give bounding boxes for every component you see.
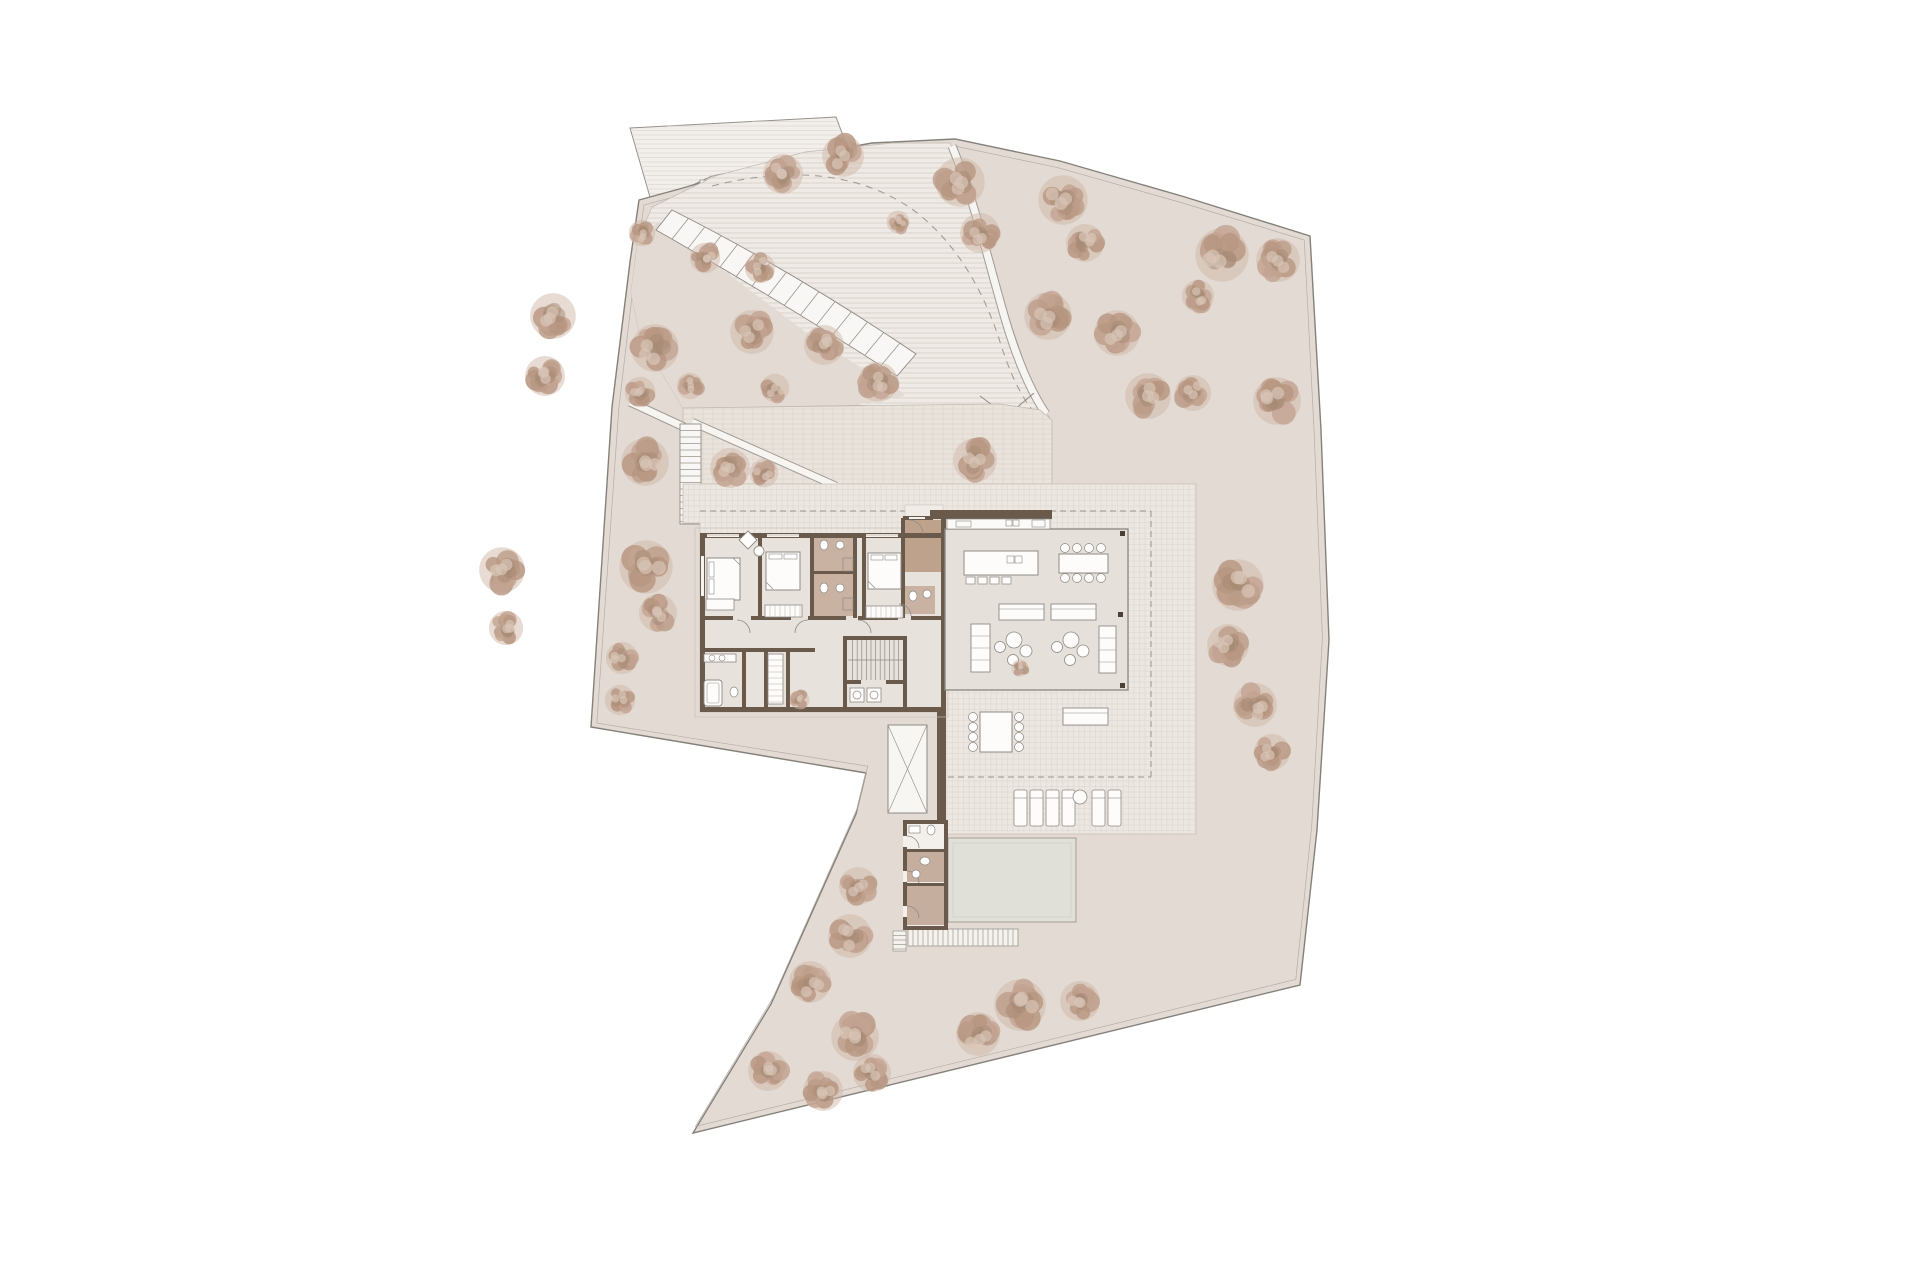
pool-wing-walls bbox=[907, 883, 944, 886]
pavilion-columns bbox=[1120, 683, 1125, 688]
wing-walls bbox=[814, 571, 855, 574]
tree-foliage-light bbox=[1183, 385, 1193, 395]
dining-table bbox=[1059, 554, 1108, 573]
tree-foliage-light bbox=[617, 654, 626, 663]
tree-foliage-light bbox=[652, 561, 666, 575]
tree-foliage-light bbox=[1034, 308, 1047, 321]
tree-foliage-light bbox=[870, 1071, 880, 1081]
tree-foliage-light bbox=[835, 145, 846, 156]
wing-walls bbox=[742, 650, 746, 709]
wc-sw bbox=[730, 687, 738, 697]
desk bbox=[706, 599, 734, 610]
shelf-units bbox=[1099, 626, 1116, 673]
tree-foliage-light bbox=[1079, 232, 1089, 242]
pool-wing-walls bbox=[944, 820, 948, 930]
tree-foliage-light bbox=[762, 473, 770, 481]
sofas bbox=[1051, 604, 1096, 620]
bed-2-pillows bbox=[769, 554, 782, 559]
pool-wing-wc-top bbox=[927, 825, 935, 835]
tree-foliage-light bbox=[842, 925, 854, 937]
tree-foliage-light bbox=[505, 620, 514, 629]
bed-1-pillows bbox=[709, 579, 714, 594]
pool-wing-floors bbox=[907, 852, 944, 882]
dining-chairs bbox=[1085, 574, 1094, 583]
sofas bbox=[999, 604, 1044, 620]
outdoor-dining-chairs bbox=[1015, 713, 1024, 722]
floor-plan-canvas bbox=[0, 0, 1920, 1280]
wing-walls bbox=[886, 680, 907, 684]
pool-wing-wc bbox=[920, 857, 930, 865]
tree-foliage-light bbox=[610, 655, 619, 664]
tree-foliage-light bbox=[798, 695, 803, 700]
laundry-units bbox=[850, 688, 864, 702]
outdoor-dining-chairs bbox=[1015, 723, 1024, 732]
tree-foliage-light bbox=[637, 557, 651, 571]
island-stools bbox=[1002, 577, 1011, 584]
dining-chairs bbox=[1073, 574, 1082, 583]
island-stools bbox=[990, 577, 999, 584]
pool-wing-basin bbox=[912, 870, 920, 878]
bath-floors bbox=[814, 538, 853, 571]
tree-foliage-light bbox=[952, 182, 965, 195]
window-gaps bbox=[767, 534, 799, 537]
tree-foliage-light bbox=[1193, 381, 1203, 391]
tree-foliage-light bbox=[819, 339, 830, 350]
window-gaps bbox=[866, 534, 898, 537]
tree-foliage-light bbox=[720, 461, 731, 472]
wing-walls bbox=[808, 616, 846, 620]
outdoor-dining-chairs bbox=[969, 723, 978, 732]
sun-loungers bbox=[1108, 790, 1121, 826]
outdoor-dining-chairs bbox=[1015, 743, 1024, 752]
tree-foliage-light bbox=[544, 312, 556, 324]
tree-foliage-light bbox=[965, 1037, 977, 1049]
pool-wing-walls bbox=[907, 849, 944, 852]
island-stools bbox=[966, 577, 975, 584]
tree-foliage-light bbox=[1105, 333, 1117, 345]
wardrobes bbox=[765, 605, 802, 617]
tree-foliage-light bbox=[976, 233, 987, 244]
pool bbox=[948, 838, 1076, 922]
wing-walls bbox=[853, 533, 857, 618]
bed-3-pillows bbox=[885, 555, 897, 560]
wing-walls bbox=[901, 518, 905, 618]
wc-fixtures bbox=[820, 583, 828, 593]
tree-foliage-light bbox=[1144, 383, 1156, 395]
tree-foliage-light bbox=[538, 367, 549, 378]
coffee-tables bbox=[1077, 645, 1089, 657]
outdoor-sofa bbox=[1063, 708, 1108, 725]
wing-walls bbox=[843, 636, 847, 712]
dining-chairs bbox=[1097, 544, 1106, 553]
pool-wing-walls bbox=[903, 926, 948, 930]
tree-foliage-light bbox=[849, 1028, 862, 1041]
tree-foliage-light bbox=[801, 986, 812, 997]
tree-foliage-light bbox=[873, 372, 884, 383]
laundry-units bbox=[867, 688, 881, 702]
pool-wing-door-gaps bbox=[903, 906, 907, 917]
wing-walls bbox=[810, 533, 814, 618]
sun-loungers bbox=[1092, 790, 1105, 826]
sun-loungers bbox=[1014, 790, 1027, 826]
dining-chairs bbox=[1061, 544, 1070, 553]
tree-foliage-light bbox=[832, 158, 843, 169]
tree-foliage-light bbox=[687, 385, 694, 392]
outdoor-dining-chairs bbox=[969, 713, 978, 722]
tree-foliage-light bbox=[1195, 297, 1204, 306]
tree-foliage-light bbox=[640, 229, 647, 236]
bath-sinks bbox=[923, 590, 931, 598]
kitchen-counter bbox=[947, 519, 1050, 529]
dining-chairs bbox=[1085, 544, 1094, 553]
tree-foliage-light bbox=[771, 384, 779, 392]
wing-walls bbox=[703, 616, 733, 620]
tree-foliage-light bbox=[1242, 584, 1256, 598]
window-gaps bbox=[707, 534, 739, 537]
outdoor-dining-chairs bbox=[969, 733, 978, 742]
pool-wing-walls bbox=[903, 820, 948, 824]
wing-walls bbox=[862, 533, 866, 618]
tree-foliage-light bbox=[686, 377, 693, 384]
pool-wing-sink bbox=[909, 826, 920, 833]
tree-foliage-light bbox=[1074, 997, 1085, 1008]
tree-foliage-light bbox=[1019, 665, 1024, 670]
tree-foliage-light bbox=[817, 1089, 828, 1100]
coffee-tables bbox=[1006, 632, 1022, 648]
wing-walls bbox=[764, 650, 768, 709]
tree-foliage-light bbox=[743, 331, 755, 343]
tree-foliage-light bbox=[611, 695, 619, 703]
tree-foliage-light bbox=[843, 940, 855, 952]
wc-fixtures bbox=[909, 591, 917, 601]
pool-wing-floors bbox=[907, 886, 944, 925]
tree-foliage-light bbox=[1260, 389, 1273, 402]
kitchen-wall bbox=[930, 510, 1052, 519]
terrace-west-wall bbox=[937, 712, 946, 838]
kitchen-island bbox=[964, 551, 1038, 575]
coffee-tables bbox=[995, 642, 1006, 653]
tree-foliage-light bbox=[1025, 1000, 1039, 1014]
wing-walls bbox=[843, 680, 861, 684]
wing-walls bbox=[703, 648, 815, 652]
entry-floor bbox=[905, 520, 941, 572]
tree-foliage-light bbox=[1055, 197, 1068, 210]
coffee-tables bbox=[1052, 642, 1063, 653]
pool-wing-door-gaps bbox=[903, 871, 907, 882]
tree-foliage-light bbox=[652, 607, 662, 617]
tree-foliage-light bbox=[639, 455, 652, 468]
tree-foliage-light bbox=[1266, 251, 1278, 263]
tree-foliage-light bbox=[1115, 325, 1127, 337]
tree-foliage-light bbox=[777, 169, 788, 180]
tree-foliage-light bbox=[708, 252, 716, 260]
tree-foliage-light bbox=[809, 977, 820, 988]
bed-3-pillows bbox=[871, 555, 883, 560]
bath-sinks bbox=[836, 584, 844, 592]
wardrobes bbox=[866, 606, 903, 618]
pool-wing-door-gaps bbox=[903, 836, 907, 847]
tree-foliage-light bbox=[766, 1065, 777, 1076]
tree-foliage-light bbox=[759, 257, 767, 265]
outdoor-dining-chairs bbox=[969, 743, 978, 752]
tree-foliage-light bbox=[963, 452, 975, 464]
tree-foliage-light bbox=[639, 348, 652, 361]
tree-foliage-light bbox=[753, 319, 765, 331]
wing-walls bbox=[843, 636, 907, 640]
sun-loungers bbox=[1030, 790, 1043, 826]
tree-foliage-light bbox=[778, 387, 786, 395]
south-stair-side bbox=[893, 931, 906, 951]
tree-foliage-light bbox=[620, 696, 628, 704]
pavilion-columns bbox=[1120, 531, 1125, 536]
dining-chairs bbox=[1061, 574, 1070, 583]
tree-foliage-light bbox=[1213, 254, 1227, 268]
tree-foliage-light bbox=[634, 389, 642, 397]
wing-walls bbox=[903, 636, 907, 712]
coffee-tables bbox=[1020, 645, 1032, 657]
tree-foliage-light bbox=[1256, 701, 1268, 713]
tree-foliage-light bbox=[1231, 571, 1245, 585]
tree-foliage-light bbox=[753, 262, 761, 270]
window-gaps bbox=[701, 556, 704, 596]
tree-foliage-light bbox=[490, 564, 502, 576]
pavilion-columns bbox=[1118, 612, 1123, 617]
wc-fixtures bbox=[820, 540, 828, 550]
tree-foliage-light bbox=[1014, 993, 1028, 1007]
lounge-chair-table bbox=[754, 546, 764, 556]
dining-chairs bbox=[1097, 574, 1106, 583]
island-stools bbox=[978, 577, 987, 584]
bath-sinks bbox=[836, 541, 844, 549]
lounger-side-table bbox=[1073, 790, 1087, 804]
coffee-tables bbox=[1063, 632, 1079, 648]
outdoor-dining-chairs bbox=[1015, 733, 1024, 742]
site-plan-page bbox=[0, 0, 1920, 1280]
tree-foliage-light bbox=[900, 220, 906, 226]
tree-foliage-light bbox=[854, 883, 864, 893]
bed-1-pillows bbox=[709, 562, 714, 577]
window-gaps bbox=[909, 517, 925, 519]
wing-walls bbox=[786, 650, 790, 709]
tree-foliage-light bbox=[877, 382, 888, 393]
outdoor-dining-table bbox=[980, 712, 1012, 752]
tree-foliage-light bbox=[1265, 750, 1275, 760]
wing-walls bbox=[911, 616, 941, 620]
sun-loungers bbox=[1046, 790, 1059, 826]
tree-foliage-light bbox=[753, 468, 761, 476]
closet-unit bbox=[768, 654, 783, 704]
dining-chairs bbox=[1073, 544, 1082, 553]
tree-foliage-light bbox=[1272, 387, 1285, 400]
bed-2-pillows bbox=[784, 554, 797, 559]
tree-foliage-light bbox=[1192, 287, 1201, 296]
coffee-tables bbox=[1065, 655, 1076, 666]
tree-foliage-light bbox=[1213, 637, 1224, 648]
